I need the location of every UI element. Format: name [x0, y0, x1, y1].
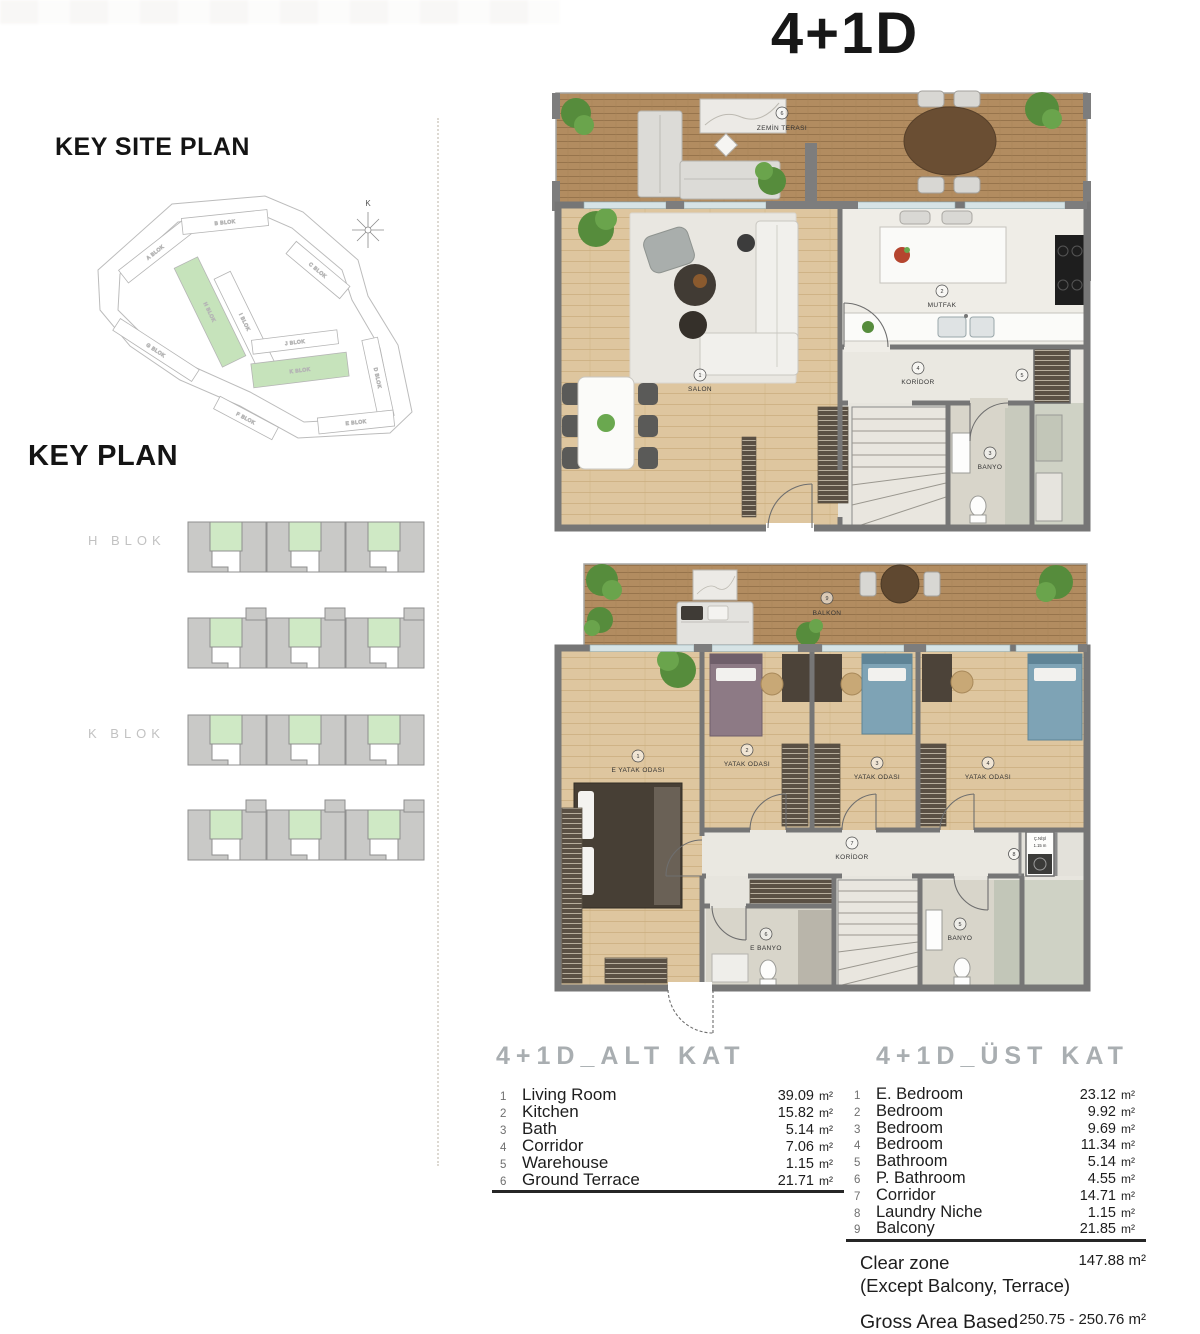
table-row: 7 Corridor 14.71 m²	[846, 1186, 1146, 1203]
shower-tray	[712, 954, 748, 982]
gross-area-label: Gross Area Based on Sales	[860, 1311, 1019, 1334]
gross-area-row: Gross Area Based on Sales 250.75 - 250.7…	[860, 1311, 1146, 1334]
clear-zone-row: Clear zone 147.88 m²	[860, 1252, 1146, 1274]
row-unit: m²	[814, 1123, 844, 1137]
svg-text:1: 1	[699, 373, 702, 379]
utility-shaft	[1024, 880, 1085, 986]
row-num: 5	[846, 1157, 876, 1169]
balcony-deck	[584, 564, 1087, 650]
upper-floor-plan: 9 BALKON 1 E YATAK ODASI 2 YATAK ODASI 3…	[550, 558, 1095, 1036]
svg-text:4: 4	[917, 366, 920, 372]
table-row: 6 Ground Terrace 21.71 m²	[492, 1170, 844, 1187]
row-num: 2	[492, 1108, 522, 1120]
lower-area-table: 4+1D_ALT KAT 1 Living Room 39.09 m² 2 Ki…	[492, 1042, 844, 1193]
key-plan-row-3	[188, 715, 424, 765]
hall-wardrobe	[818, 407, 848, 503]
svg-text:BALKON: BALKON	[813, 610, 842, 617]
row-num: 4	[846, 1140, 876, 1152]
row-area: 21.71	[748, 1173, 814, 1189]
lower-floor-plan: 6 ZEMİN TERASI 1 SALON 2 MUTFAK 4 KORİDO…	[550, 85, 1095, 540]
clear-zone-label: Clear zone	[860, 1252, 949, 1274]
row-unit: m²	[814, 1140, 844, 1154]
svg-text:KORİDOR: KORİDOR	[901, 377, 934, 386]
site-ring-road	[98, 196, 412, 438]
desk	[922, 654, 952, 702]
brochure-page: 4+1D KEY SITE PLAN A BLOK B BLOK C BLOK …	[0, 0, 1200, 1334]
svg-text:7: 7	[851, 841, 854, 847]
svg-text:SALON: SALON	[688, 386, 712, 393]
row-area: 21.85	[1050, 1221, 1116, 1237]
table-row: 3 Bath 5.14 m²	[492, 1119, 844, 1136]
toilet	[970, 496, 986, 516]
row-unit: m²	[1116, 1206, 1146, 1220]
key-plan-row-2	[188, 608, 424, 668]
row-area: 1.15	[1050, 1205, 1116, 1221]
cooktop	[1055, 235, 1085, 305]
chair	[951, 671, 973, 693]
row-num: 2	[846, 1107, 876, 1119]
upper-table-title: 4+1D_ÜST KAT	[876, 1042, 1146, 1071]
svg-text:9: 9	[826, 596, 829, 602]
shower-tiles	[994, 880, 1022, 986]
table-row: 4 Corridor 7.06 m²	[492, 1136, 844, 1153]
balcony-sofa	[677, 602, 753, 646]
bath-sink	[926, 910, 942, 950]
wardrobe	[920, 744, 946, 826]
compass-north-label: K	[365, 199, 371, 208]
desk	[814, 654, 842, 702]
row-unit: m²	[814, 1157, 844, 1171]
svg-text:E YATAK ODASI: E YATAK ODASI	[611, 767, 664, 774]
svg-text:KORİDOR: KORİDOR	[835, 852, 868, 861]
balcony-coffee-table	[693, 570, 737, 600]
row-unit: m²	[1116, 1088, 1146, 1102]
row-unit: m²	[1116, 1172, 1146, 1186]
lower-table-title: 4+1D_ALT KAT	[496, 1042, 844, 1071]
svg-text:MUTFAK: MUTFAK	[928, 302, 957, 309]
row-area: 9.69	[1050, 1121, 1116, 1137]
site-block-b: B BLOK	[181, 210, 268, 235]
svg-text:YATAK ODASI: YATAK ODASI	[724, 761, 770, 768]
table-row: 6 P. Bathroom 4.55 m²	[846, 1169, 1146, 1186]
key-plan-heading: KEY PLAN	[28, 440, 178, 473]
compass-icon: K	[352, 199, 384, 248]
k-blok-label: K BLOK	[88, 726, 165, 741]
row-num: 6	[492, 1176, 522, 1188]
svg-text:YATAK ODASI: YATAK ODASI	[965, 774, 1011, 781]
svg-text:2: 2	[941, 289, 944, 295]
row-area: 14.71	[1050, 1188, 1116, 1204]
site-block-e: E BLOK	[317, 410, 394, 434]
row-num: 3	[492, 1125, 522, 1137]
svg-text:BANYO: BANYO	[978, 464, 1003, 471]
site-block-j: J BLOK	[251, 330, 338, 354]
table-row: 1 E. Bedroom 23.12 m²	[846, 1085, 1146, 1102]
key-plan-row-1	[188, 522, 424, 572]
row-num: 9	[846, 1224, 876, 1236]
svg-text:3: 3	[989, 451, 992, 457]
upper-area-table: 4+1D_ÜST KAT 1 E. Bedroom 23.12 m² 2 Bed…	[846, 1042, 1146, 1334]
row-num: 1	[492, 1091, 522, 1103]
key-plan-row-4	[188, 800, 424, 860]
row-unit: m²	[814, 1174, 844, 1188]
row-unit: m²	[1116, 1189, 1146, 1203]
chair	[761, 673, 783, 695]
row-area: 5.14	[1050, 1154, 1116, 1170]
upper-table-rows: 1 E. Bedroom 23.12 m² 2 Bedroom 9.92 m² …	[846, 1085, 1146, 1242]
svg-text:2: 2	[746, 748, 749, 754]
table-row: 9 Balcony 21.85 m²	[846, 1219, 1146, 1236]
row-area: 5.14	[748, 1122, 814, 1138]
corridor-shelf	[750, 880, 832, 904]
row-num: 1	[846, 1090, 876, 1102]
row-num: 6	[846, 1174, 876, 1186]
row-num: 7	[846, 1191, 876, 1203]
row-area: 1.15	[748, 1156, 814, 1172]
svg-text:5: 5	[1021, 373, 1024, 379]
row-area: 4.55	[1050, 1171, 1116, 1187]
row-unit: m²	[1116, 1138, 1146, 1152]
bath-tile-band	[798, 910, 832, 986]
kitchen-sink	[938, 317, 966, 337]
svg-text:1.15 m: 1.15 m	[1034, 843, 1047, 848]
staircase	[852, 407, 946, 528]
row-area: 7.06	[748, 1139, 814, 1155]
site-blocks: A BLOK B BLOK C BLOK D BLOK E BLOK F BLO…	[113, 210, 395, 440]
row-area: 11.34	[1050, 1137, 1116, 1153]
key-plan: H BLOK K BLOK	[55, 500, 450, 900]
site-block-d: D BLOK	[362, 337, 394, 419]
row-area: 15.82	[748, 1105, 814, 1121]
svg-text:8: 8	[1013, 852, 1016, 858]
dining-table	[562, 377, 658, 469]
row-num: 5	[492, 1159, 522, 1171]
faded-watermark	[0, 0, 560, 24]
row-unit: m²	[1116, 1222, 1146, 1236]
svg-text:Ç.NİŞİ: Ç.NİŞİ	[1034, 836, 1046, 841]
corridor-floor	[702, 830, 1020, 876]
toilet	[954, 958, 970, 978]
row-unit: m²	[1116, 1122, 1146, 1136]
bed	[710, 654, 762, 736]
chair	[841, 673, 863, 695]
svg-text:6: 6	[781, 111, 784, 117]
table-row: 5 Bathroom 5.14 m²	[846, 1152, 1146, 1169]
warehouse-closet	[1034, 347, 1070, 403]
row-unit: m²	[814, 1089, 844, 1103]
row-unit: m²	[1116, 1155, 1146, 1169]
svg-text:5: 5	[959, 922, 962, 928]
gross-area-value: 250.75 - 250.76 m²	[1019, 1311, 1146, 1328]
bath-shower-tiles	[1005, 403, 1032, 528]
svg-text:BANYO: BANYO	[948, 935, 973, 942]
row-area: 39.09	[748, 1088, 814, 1104]
row-label: Ground Terrace	[522, 1170, 748, 1190]
bed	[1028, 654, 1082, 740]
table-row: 2 Kitchen 15.82 m²	[492, 1102, 844, 1119]
clear-zone-value: 147.88 m²	[1078, 1252, 1146, 1269]
column-divider	[437, 118, 439, 1166]
area-summary: Clear zone 147.88 m² (Except Balcony, Te…	[846, 1252, 1146, 1334]
svg-text:1: 1	[637, 754, 640, 760]
table-row: 2 Bedroom 9.92 m²	[846, 1102, 1146, 1119]
lower-table-rows: 1 Living Room 39.09 m² 2 Kitchen 15.82 m…	[492, 1085, 844, 1193]
table-row: 8 Laundry Niche 1.15 m²	[846, 1203, 1146, 1220]
row-unit: m²	[814, 1106, 844, 1120]
windows	[584, 201, 1087, 209]
row-label: Balcony	[876, 1219, 1050, 1238]
table-row: 3 Bedroom 9.69 m²	[846, 1119, 1146, 1136]
row-num: 4	[492, 1142, 522, 1154]
row-area: 23.12	[1050, 1087, 1116, 1103]
key-site-plan-heading: KEY SITE PLAN	[55, 133, 250, 162]
toilet	[760, 960, 776, 980]
svg-text:4: 4	[987, 761, 990, 767]
row-area: 9.92	[1050, 1104, 1116, 1120]
table-row: 1 Living Room 39.09 m²	[492, 1085, 844, 1102]
svg-text:YATAK ODASI: YATAK ODASI	[854, 774, 900, 781]
svg-text:6: 6	[765, 932, 768, 938]
h-blok-label: H BLOK	[88, 533, 166, 548]
bed	[862, 654, 912, 734]
table-row: 4 Bedroom 11.34 m²	[846, 1135, 1146, 1152]
svg-text:3: 3	[876, 761, 879, 767]
clear-zone-note: (Except Balcony, Terrace)	[860, 1275, 1146, 1297]
key-site-plan: A BLOK B BLOK C BLOK D BLOK E BLOK F BLO…	[60, 170, 440, 460]
row-num: 3	[846, 1124, 876, 1136]
table-row: 5 Warehouse 1.15 m²	[492, 1153, 844, 1170]
bath-sink	[952, 433, 970, 473]
site-block-g: G BLOK	[113, 319, 199, 382]
desk	[782, 654, 810, 702]
row-num: 8	[846, 1208, 876, 1220]
wardrobe	[814, 744, 840, 826]
room-label-warehouse: 5	[1016, 369, 1028, 381]
row-unit: m²	[1116, 1105, 1146, 1119]
staircase	[838, 880, 918, 986]
svg-text:ZEMİN TERASI: ZEMİN TERASI	[757, 123, 807, 132]
svg-text:E BANYO: E BANYO	[750, 945, 782, 952]
page-title: 4+1D	[620, 0, 1070, 67]
